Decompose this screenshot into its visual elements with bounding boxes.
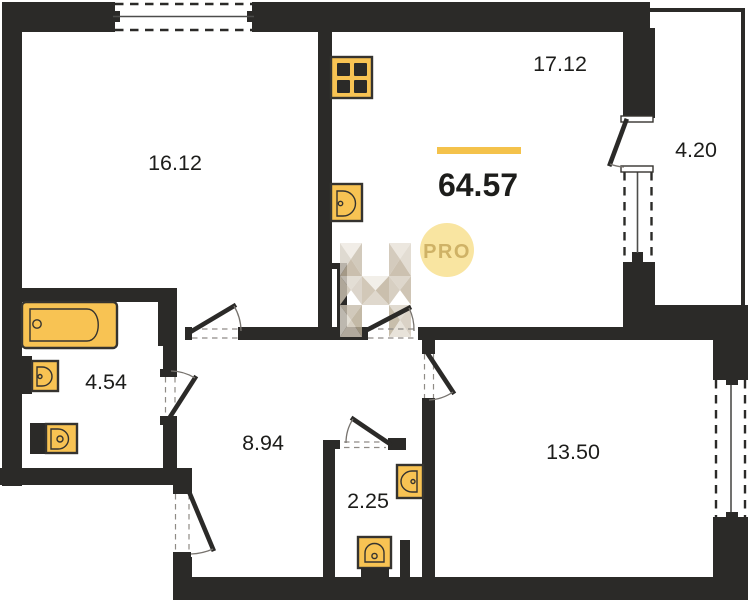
stove-burner	[337, 63, 350, 76]
wall-segment	[15, 350, 22, 468]
door-leaf	[428, 354, 453, 392]
window-nub	[632, 252, 643, 262]
bedroom2-door	[425, 354, 454, 400]
window-nub	[726, 376, 738, 385]
door-leaf	[610, 121, 626, 164]
bedroom-area-label: 16.12	[148, 151, 202, 175]
bathroom-area-label: 4.54	[85, 370, 127, 394]
bedroom-door	[192, 306, 241, 338]
wall-segment	[323, 440, 335, 580]
bathroom-door	[166, 371, 196, 417]
bedroom2-area-label: 13.50	[546, 440, 600, 464]
wall-segment	[158, 288, 177, 346]
wall-segment	[0, 468, 192, 485]
balcony-door	[610, 121, 626, 167]
toilet-bowl	[358, 537, 391, 568]
wall-segment	[173, 557, 192, 577]
balcony-area-label: 4.20	[675, 138, 717, 162]
stove-icon	[331, 57, 372, 98]
balcony-thin-wall	[741, 8, 745, 308]
door-nub	[160, 369, 177, 377]
wall-segment	[318, 2, 332, 340]
stove-burner	[337, 80, 350, 93]
window-nub	[726, 512, 738, 521]
living-room-area-label: 17.12	[533, 52, 587, 76]
toilet-icon	[30, 423, 77, 454]
wall-segment	[252, 2, 650, 32]
wall-segment	[623, 28, 655, 118]
toilet-tank	[30, 423, 46, 454]
entrance-door	[176, 494, 214, 554]
stove-burner	[354, 80, 367, 93]
bedroom-window	[113, 4, 254, 30]
door-leaf	[192, 306, 234, 331]
sink-mount	[22, 356, 32, 394]
wc-sink-icon	[397, 465, 423, 498]
balcony-door-frame	[621, 166, 653, 172]
total-area-label: 64.57	[438, 167, 518, 203]
door-arc	[191, 549, 213, 554]
kitchen-sink-icon	[331, 184, 362, 221]
bathtub-icon	[22, 302, 117, 348]
total-area-underline	[437, 147, 521, 154]
door-leaf	[353, 419, 390, 444]
wall-segment	[713, 330, 748, 380]
bathroom-sink-icon	[22, 356, 58, 394]
pro-badge-label: PRO	[423, 241, 471, 263]
wc-area-label: 2.25	[347, 489, 389, 513]
wall-segment	[2, 288, 168, 302]
balcony-thin-wall	[650, 8, 743, 12]
balcony-window	[621, 116, 653, 258]
toilet-tank	[361, 568, 389, 579]
wall-segment	[400, 540, 410, 577]
bedroom2-window	[716, 380, 745, 517]
wall-segment	[418, 327, 435, 340]
hallway-area-label: 8.94	[242, 431, 284, 455]
sink-body	[32, 361, 58, 391]
door-arc	[346, 419, 353, 443]
watermark-logo	[340, 243, 411, 337]
floor-plan: 64.57 PRO 16.12 17.12 4.20 4.54 8.94 2.2…	[0, 0, 748, 600]
wall-segment	[173, 577, 748, 600]
wall-segment	[713, 517, 748, 600]
wall-segment	[623, 262, 655, 328]
floor-plan-canvas: 64.57 PRO 16.12 17.12 4.20 4.54 8.94 2.2…	[0, 0, 748, 600]
door-leaf	[170, 378, 195, 417]
wc-toilet-icon	[358, 537, 391, 579]
door-leaf	[190, 494, 213, 549]
wc-door	[344, 419, 390, 448]
stove-burner	[354, 63, 367, 76]
